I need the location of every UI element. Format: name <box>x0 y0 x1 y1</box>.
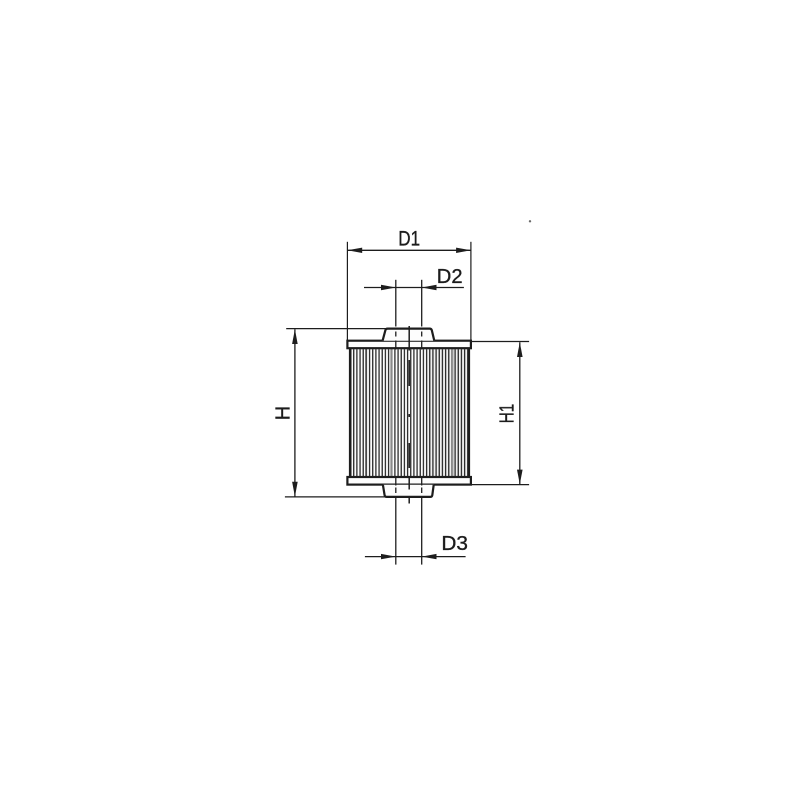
svg-text:H: H <box>272 406 294 420</box>
svg-text:H1: H1 <box>497 404 519 424</box>
svg-text:D2: D2 <box>437 266 463 288</box>
svg-text:D1: D1 <box>398 227 420 250</box>
svg-text:D3: D3 <box>441 533 468 555</box>
